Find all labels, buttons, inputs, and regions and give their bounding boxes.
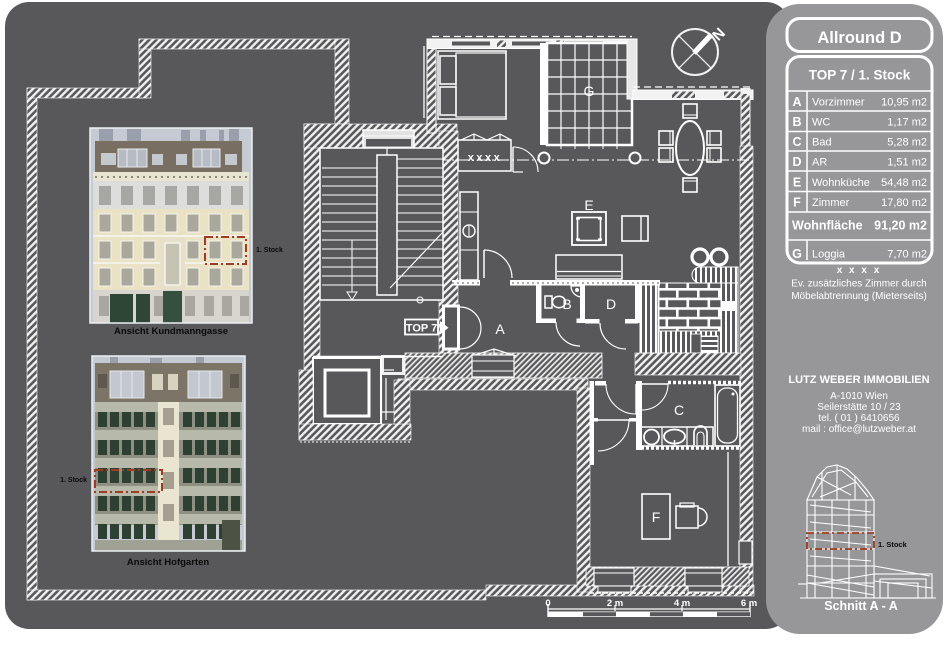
svg-text:Wohnfläche: Wohnfläche	[792, 219, 863, 233]
svg-text:TOP 7 / 1. Stock: TOP 7 / 1. Stock	[809, 68, 911, 83]
svg-text:WC: WC	[812, 117, 830, 129]
svg-text:5,28 m2: 5,28 m2	[887, 137, 927, 149]
svg-text:C: C	[674, 402, 684, 418]
svg-text:G: G	[792, 247, 802, 261]
svg-text:Zimmer: Zimmer	[812, 197, 850, 209]
svg-text:Loggia: Loggia	[812, 249, 846, 261]
svg-text:54,48 m2: 54,48 m2	[881, 177, 927, 189]
svg-text:7,70 m2: 7,70 m2	[887, 249, 927, 261]
svg-text:E: E	[584, 197, 593, 213]
svg-text:Vorzimmer: Vorzimmer	[812, 97, 865, 109]
svg-text:E: E	[793, 176, 801, 190]
svg-text:D: D	[606, 296, 616, 312]
svg-text:B: B	[792, 115, 801, 129]
svg-text:A: A	[495, 321, 505, 337]
svg-text:10,95 m2: 10,95 m2	[881, 97, 927, 109]
svg-text:Seilerstätte 10 / 23: Seilerstätte 10 / 23	[817, 402, 901, 413]
svg-text:TOP 7: TOP 7	[406, 323, 437, 335]
svg-text:G: G	[584, 83, 595, 99]
svg-text:D: D	[792, 155, 801, 169]
svg-text:1. Stock: 1. Stock	[878, 540, 908, 549]
svg-text:1,17 m2: 1,17 m2	[887, 117, 927, 129]
svg-text:A: A	[792, 95, 801, 109]
svg-text:Ansicht Hofgarten: Ansicht Hofgarten	[127, 557, 210, 568]
svg-text:mail : office@lutzweber.at: mail : office@lutzweber.at	[802, 424, 916, 435]
svg-text:xxxx: xxxx	[468, 152, 502, 164]
svg-text:91,20 m2: 91,20 m2	[874, 219, 927, 233]
svg-text:Ev. zusätzliches Zimmer durch: Ev. zusätzliches Zimmer durch	[791, 279, 926, 290]
svg-text:Möbelabtrennung (Mieterseits): Möbelabtrennung (Mieterseits)	[791, 291, 927, 302]
svg-text:AR: AR	[812, 157, 827, 169]
svg-text:Ansicht Kundmanngasse: Ansicht Kundmanngasse	[114, 326, 228, 337]
svg-text:F: F	[652, 509, 661, 525]
svg-text:x x x x: x x x x	[837, 265, 882, 276]
svg-text:tel. ( 01 ) 6410656: tel. ( 01 ) 6410656	[818, 413, 900, 424]
svg-text:LUTZ WEBER IMMOBILIEN: LUTZ WEBER IMMOBILIEN	[788, 374, 929, 386]
svg-text:B: B	[562, 296, 571, 312]
svg-text:F: F	[793, 196, 801, 210]
svg-text:1. Stock: 1. Stock	[256, 247, 283, 254]
svg-text:Wohnküche: Wohnküche	[812, 177, 870, 189]
svg-text:Schnitt A - A: Schnitt A - A	[824, 599, 898, 613]
svg-text:A-1010 Wien: A-1010 Wien	[830, 391, 888, 402]
svg-text:1. Stock: 1. Stock	[60, 477, 87, 484]
svg-text:C: C	[792, 135, 801, 149]
svg-text:17,80 m2: 17,80 m2	[881, 197, 927, 209]
svg-text:Allround D: Allround D	[817, 29, 901, 47]
svg-text:Bad: Bad	[812, 137, 832, 149]
svg-text:1,51 m2: 1,51 m2	[887, 157, 927, 169]
svg-text:6 m: 6 m	[741, 598, 757, 609]
